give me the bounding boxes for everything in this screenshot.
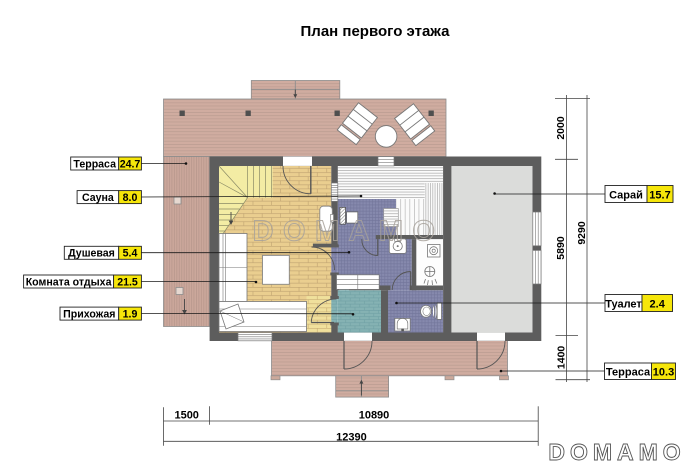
svg-text:2000: 2000	[555, 116, 567, 140]
svg-text:8.0: 8.0	[123, 192, 138, 204]
svg-text:1400: 1400	[556, 346, 568, 370]
svg-text:1500: 1500	[174, 410, 198, 422]
svg-text:Прихожая: Прихожая	[63, 308, 115, 320]
svg-text:Терраса: Терраса	[606, 367, 651, 379]
svg-text:1.9: 1.9	[123, 308, 138, 320]
svg-text:Терраса: Терраса	[73, 158, 116, 170]
svg-text:Душевая: Душевая	[68, 248, 115, 260]
svg-text:Сауна: Сауна	[82, 192, 114, 204]
svg-text:21.5: 21.5	[117, 276, 138, 288]
svg-text:Комната отдыха: Комната отдыха	[26, 276, 112, 288]
svg-text:Сарай: Сарай	[609, 189, 643, 201]
svg-text:2.4: 2.4	[650, 298, 666, 310]
svg-text:5890: 5890	[555, 236, 567, 260]
svg-text:5.4: 5.4	[123, 248, 138, 260]
svg-text:План первого этажа: План первого этажа	[301, 23, 451, 40]
svg-text:12390: 12390	[336, 431, 367, 443]
svg-text:15.7: 15.7	[649, 189, 670, 201]
svg-text:DОМАМО: DОМАМО	[253, 216, 445, 248]
svg-text:10.3: 10.3	[653, 367, 674, 379]
svg-text:Туалет: Туалет	[605, 298, 642, 310]
svg-text:10890: 10890	[359, 410, 390, 422]
svg-text:DOMAMO: DOMAMO	[548, 439, 685, 465]
svg-text:9290: 9290	[576, 221, 588, 245]
svg-text:24.7: 24.7	[120, 158, 141, 170]
